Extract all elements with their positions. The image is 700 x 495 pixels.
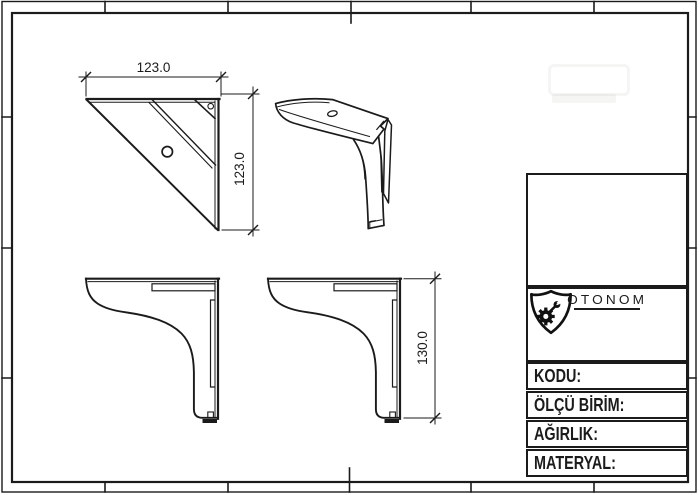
- title-block-row-materyal: MATERYAL:: [526, 449, 688, 477]
- watermark-shape: [548, 64, 630, 96]
- dim-label-plan-width: 123.0: [137, 60, 171, 75]
- title-block-empty-cell: [526, 173, 688, 287]
- side-view-left: [86, 279, 219, 423]
- mounting-hole: [162, 147, 172, 157]
- company-name: OTONOM: [567, 293, 647, 306]
- dim-label-plan-height: 123.0: [232, 152, 247, 186]
- drawing-sheet: 123.0 123.0 130.0: [0, 0, 700, 495]
- corner-hole: [208, 103, 214, 109]
- field-label-materyal: MATERYAL:: [534, 453, 616, 473]
- title-block-row-olcu-birim: ÖLÇÜ BİRİM:: [526, 391, 688, 419]
- plan-view: [87, 99, 220, 230]
- title-block-row-kodu: KODU:: [526, 362, 688, 390]
- iso-top-plate: [276, 99, 388, 144]
- title-block-logo-cell: OTONOM: [526, 287, 688, 362]
- isometric-view: [276, 99, 392, 229]
- side-view-right: [268, 279, 401, 423]
- watermark-bar: [552, 94, 616, 103]
- watermark-ghost: [546, 62, 630, 108]
- title-block-row-agirlik: AĞIRLIK:: [526, 420, 688, 448]
- field-label-agirlik: AĞIRLIK:: [534, 424, 598, 444]
- field-label-kodu: KODU:: [534, 366, 581, 386]
- plan-dim-width: [79, 72, 228, 96]
- dim-label-side-height: 130.0: [415, 331, 430, 365]
- logo-underline: [574, 308, 640, 310]
- field-label-olcu-birim: ÖLÇÜ BİRİM:: [534, 395, 624, 415]
- iso-rear-flange: [384, 120, 392, 204]
